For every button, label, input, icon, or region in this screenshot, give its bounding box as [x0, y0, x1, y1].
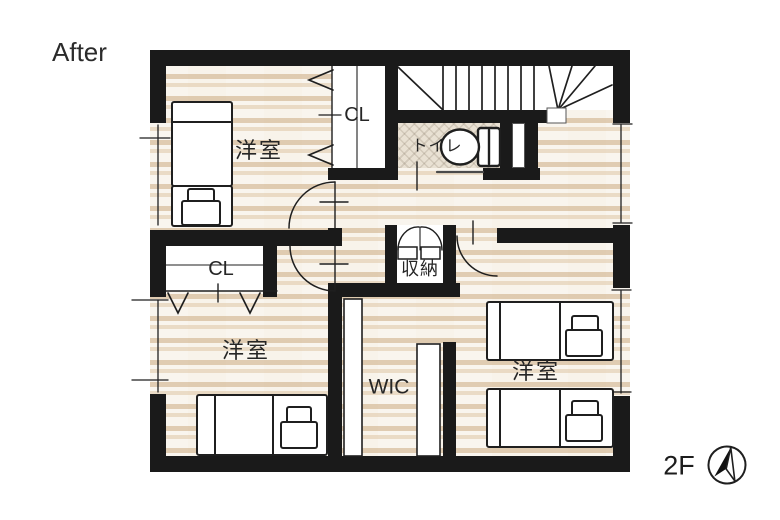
room-label-closet-top: CL [344, 105, 370, 125]
north-arrow-icon [705, 443, 749, 487]
floor-plan: After [0, 0, 780, 520]
room-label-bedroom-bottom-left: 洋室 [222, 340, 270, 362]
room-label-storage: 収納 [401, 260, 439, 278]
door-bedroom-bottom-left [290, 246, 348, 291]
door-bedroom-right [457, 221, 497, 276]
door-bedroom-top-left [289, 182, 348, 228]
room-label-toilet: トイレ [411, 139, 462, 155]
room-label-bedroom-right: 洋室 [512, 361, 560, 383]
room-label-walk-in-closet: WIC [369, 377, 410, 398]
plan-linework [0, 0, 780, 520]
bed-right-1 [487, 302, 613, 360]
storage-doors [398, 227, 442, 259]
floor-indicator: 2F [663, 453, 695, 480]
bed-right-2 [487, 389, 613, 447]
door-toilet [417, 162, 483, 190]
stairs [398, 66, 612, 123]
room-label-closet-bottom: CL [208, 259, 234, 279]
bed-bottom-left [197, 395, 327, 455]
room-label-bedroom-top-left: 洋室 [235, 140, 283, 162]
bed-top-left [172, 102, 232, 226]
